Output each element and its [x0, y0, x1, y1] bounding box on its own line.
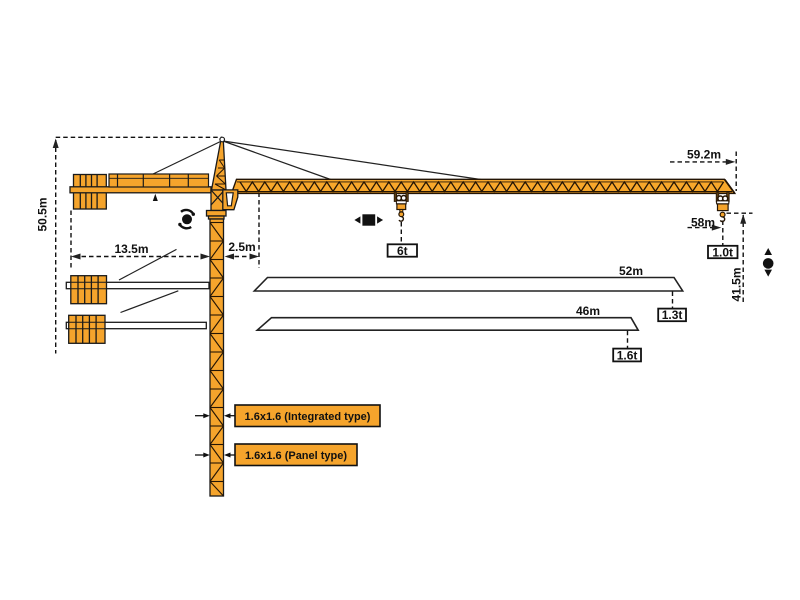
svg-text:1.0t: 1.0t: [712, 245, 733, 259]
svg-text:46m: 46m: [576, 304, 600, 318]
svg-text:58m: 58m: [691, 215, 715, 229]
svg-text:13.5m: 13.5m: [114, 242, 148, 256]
svg-text:1.6x1.6 (Integrated type): 1.6x1.6 (Integrated type): [245, 411, 371, 423]
svg-text:1.6x1.6 (Panel type): 1.6x1.6 (Panel type): [245, 450, 347, 462]
svg-text:1.3t: 1.3t: [662, 308, 683, 322]
svg-text:6t: 6t: [397, 244, 408, 258]
svg-text:52m: 52m: [619, 264, 643, 278]
svg-text:59.2m: 59.2m: [687, 147, 721, 161]
svg-text:41.5m: 41.5m: [729, 267, 743, 301]
svg-text:1.6t: 1.6t: [617, 348, 638, 362]
svg-text:50.5m: 50.5m: [36, 197, 50, 231]
svg-text:2.5m: 2.5m: [228, 240, 255, 254]
